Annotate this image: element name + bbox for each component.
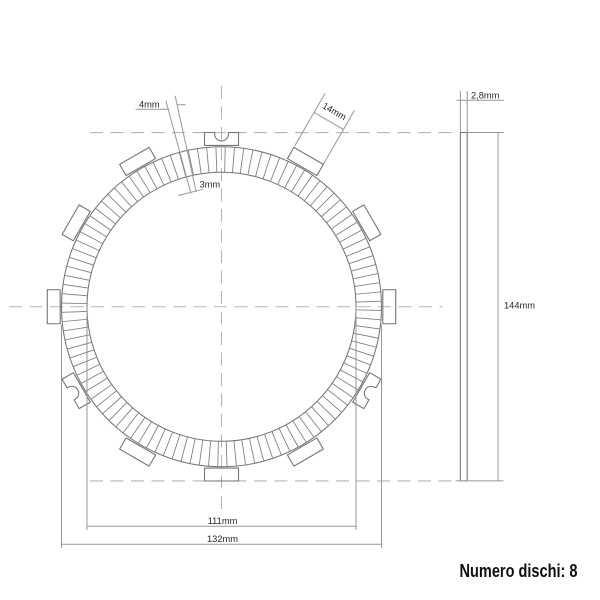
svg-text:2,8mm: 2,8mm [471, 91, 500, 101]
svg-text:144mm: 144mm [504, 300, 535, 310]
svg-text:111mm: 111mm [208, 516, 238, 526]
svg-text:3mm: 3mm [200, 179, 221, 189]
svg-text:132mm: 132mm [207, 534, 238, 544]
svg-text:Numero dischi: 8: Numero dischi: 8 [460, 560, 578, 581]
svg-text:4mm: 4mm [139, 100, 160, 110]
